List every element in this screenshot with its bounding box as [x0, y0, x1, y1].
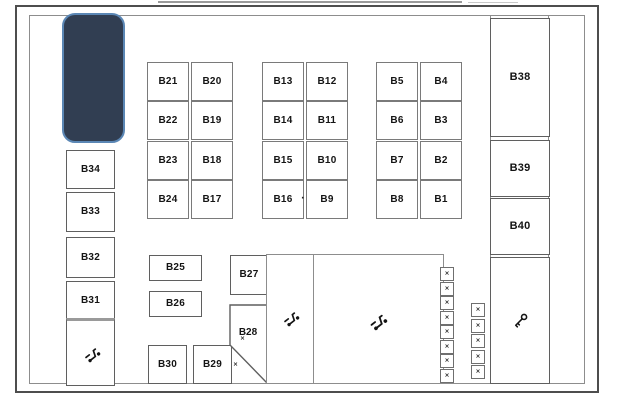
booth-label: B6	[390, 116, 403, 126]
slot[interactable]: ×	[440, 369, 454, 383]
booth-b38[interactable]: B38	[490, 18, 550, 137]
x-marker: ×	[475, 323, 480, 329]
scooter-icon	[366, 309, 388, 331]
booth-label: B20	[203, 77, 222, 87]
booth-b13[interactable]: B13	[262, 62, 304, 101]
x-marker: ×	[444, 286, 449, 292]
booth-label: B25	[166, 263, 185, 273]
booth-label: B1	[434, 195, 447, 205]
booth-label: B4	[434, 77, 447, 87]
x-marker: ×	[444, 329, 449, 335]
x-marker: ×	[475, 338, 480, 344]
booth-label: B30	[158, 360, 177, 370]
slot[interactable]: ×	[440, 340, 454, 354]
booth-b33[interactable]: B33	[66, 192, 115, 232]
x-marker: ×	[475, 354, 480, 360]
booth-label: B23	[159, 156, 178, 166]
booth-b6[interactable]: B6	[376, 101, 418, 140]
booth-label: B14	[274, 116, 293, 126]
x-marker: ×	[444, 373, 449, 379]
booth-label: B7	[390, 156, 403, 166]
scooter-icon	[280, 307, 300, 327]
booth-label: B19	[203, 116, 222, 126]
booth-b20[interactable]: B20	[191, 62, 233, 101]
slot[interactable]: ×	[471, 365, 485, 379]
booth-b8[interactable]: B8	[376, 180, 418, 219]
booth-label: B8	[390, 195, 403, 205]
slot[interactable]: ×	[440, 354, 454, 368]
booth-label: B21	[159, 77, 178, 87]
booth-label: B40	[510, 221, 531, 232]
booth-b40[interactable]: B40	[490, 198, 550, 255]
booth-b4[interactable]: B4	[420, 62, 462, 101]
booth-b25[interactable]: B25	[149, 255, 202, 281]
slot[interactable]: ×	[440, 282, 454, 296]
x-marker: ×	[444, 300, 449, 306]
scooter-icon	[81, 343, 101, 363]
booth-b27[interactable]: B27	[230, 255, 268, 295]
booth-label: B38	[510, 72, 531, 83]
moto-lane	[266, 254, 315, 384]
booth-b9[interactable]: B9	[306, 180, 348, 219]
booth-label: B32	[81, 253, 100, 263]
floor-plan: B34 B33 B32 B31 B21 B20 B22 B19 B23 B18 …	[0, 0, 620, 404]
booth-label: B26	[166, 299, 185, 309]
booth-b14[interactable]: B14	[262, 101, 304, 140]
booth-b11[interactable]: B11	[306, 101, 348, 140]
booth-b19[interactable]: B19	[191, 101, 233, 140]
slot[interactable]: ×	[471, 350, 485, 364]
booth-label: B31	[81, 296, 100, 306]
booth-label: B11	[318, 116, 336, 126]
booth-b16[interactable]: B16	[262, 180, 304, 219]
slot[interactable]: ×	[471, 334, 485, 348]
booth-b34[interactable]: B34	[66, 150, 115, 189]
booth-b15[interactable]: B15	[262, 141, 304, 180]
booth-b5[interactable]: B5	[376, 62, 418, 101]
selected-booth-highlight[interactable]	[62, 13, 125, 143]
booth-b2[interactable]: B2	[420, 141, 462, 180]
x-marker: ×	[444, 344, 449, 350]
moto-parking-left[interactable]	[66, 318, 115, 386]
booth-b7[interactable]: B7	[376, 141, 418, 180]
booth-label: B5	[390, 77, 403, 87]
key-area[interactable]	[490, 257, 550, 384]
x-marker: ×	[475, 307, 480, 313]
slot[interactable]: ×	[440, 311, 454, 325]
booth-label: B33	[81, 207, 100, 217]
booth-b28[interactable]: B28	[229, 304, 268, 384]
booth-label: B34	[81, 165, 100, 175]
slot[interactable]: ×	[471, 303, 485, 317]
booth-label: B17	[203, 195, 222, 205]
booth-label: B18	[203, 156, 222, 166]
x-marker: ×	[444, 271, 449, 277]
booth-b3[interactable]: B3	[420, 101, 462, 140]
booth-b30[interactable]: B30	[148, 345, 187, 384]
booth-label: B3	[434, 116, 447, 126]
booth-b18[interactable]: B18	[191, 141, 233, 180]
booth-b29[interactable]: B29	[193, 345, 232, 384]
slot[interactable]: ×	[471, 319, 485, 333]
x-marker: ×	[444, 315, 449, 321]
key-icon	[511, 311, 530, 330]
booth-label: B22	[159, 116, 178, 126]
booth-b17[interactable]: B17	[191, 180, 233, 219]
slot[interactable]: ×	[440, 267, 454, 281]
booth-b24[interactable]: B24	[147, 180, 189, 219]
booth-label: B16	[274, 195, 293, 205]
booth-b26[interactable]: B26	[149, 291, 202, 317]
booth-b12[interactable]: B12	[306, 62, 348, 101]
booth-b21[interactable]: B21	[147, 62, 189, 101]
booth-label: B9	[320, 195, 333, 205]
booth-label: B2	[434, 156, 447, 166]
booth-label: B12	[318, 77, 337, 87]
booth-label: B15	[274, 156, 293, 166]
booth-label: B27	[240, 270, 259, 280]
booth-label: B24	[159, 195, 178, 205]
slot[interactable]: ×	[440, 296, 454, 310]
door-marker-dot: ·	[301, 195, 304, 204]
x-marker: ×	[444, 358, 449, 364]
cropped-text-underline	[158, 1, 462, 3]
booth-b1[interactable]: B1	[420, 180, 462, 219]
b28-x-marker: ×	[240, 336, 245, 342]
booth-label: B10	[318, 156, 337, 166]
booth-b39[interactable]: B39	[490, 140, 550, 197]
booth-label: B29	[203, 360, 222, 370]
booth-label: B13	[274, 77, 293, 87]
booth-b23[interactable]: B23	[147, 141, 189, 180]
slot[interactable]: ×	[440, 325, 454, 339]
booth-b10[interactable]: B10	[306, 141, 348, 180]
booth-label: B39	[510, 163, 531, 174]
booth-b31[interactable]: B31	[66, 281, 115, 320]
booth-b32[interactable]: B32	[66, 237, 115, 278]
cropped-text-underline-2	[468, 2, 518, 3]
x-marker: ×	[475, 369, 480, 375]
moto-parking-main	[313, 254, 444, 384]
booth-b22[interactable]: B22	[147, 101, 189, 140]
